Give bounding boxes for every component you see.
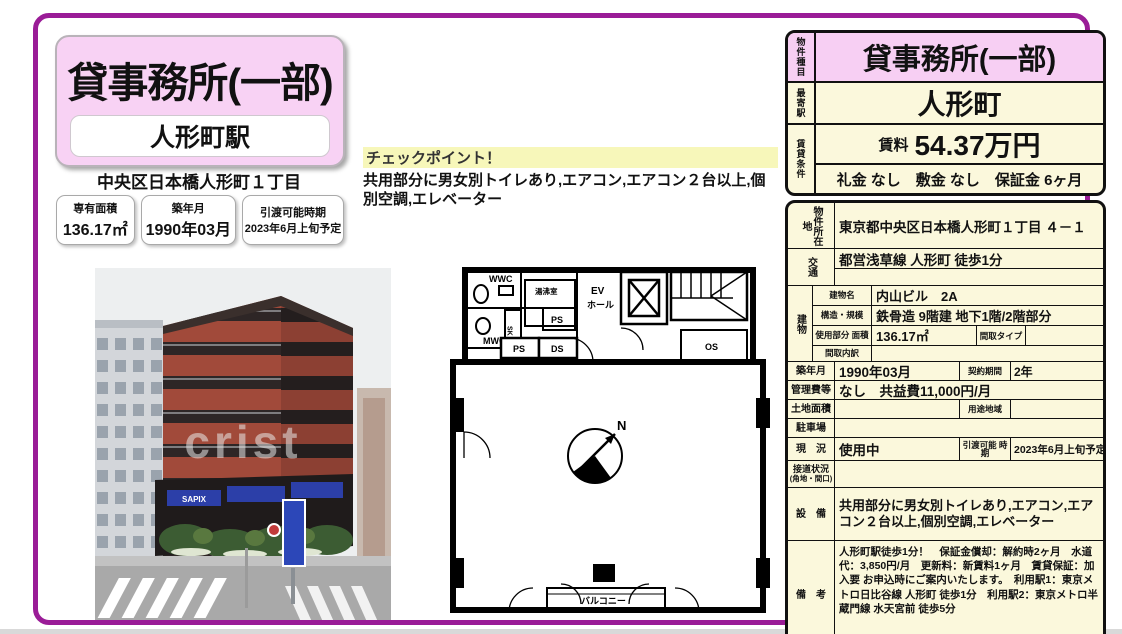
type-label: 物件種目 bbox=[788, 33, 816, 81]
os-label: OS bbox=[705, 342, 718, 352]
row-fees: 管理費等 なし 共益費11,000円/月 bbox=[788, 381, 1103, 400]
checkpoint-body: 共用部分に男女別トイレあり,エアコン,エアコン２台以上,個別空調,エレベーター bbox=[363, 172, 777, 210]
row-location: 物件所在地 東京都中央区日本橋人形町１丁目 ４－１ bbox=[788, 203, 1103, 249]
badge-handover-label: 引渡可能時期 bbox=[260, 204, 326, 220]
nearest-station-value: 人形町 bbox=[816, 83, 1103, 123]
rent-value: 54.37万円 bbox=[914, 124, 1040, 164]
road-label: 接道状況 (角地・間口) bbox=[788, 461, 835, 487]
row-land: 土地面積 用途地域 bbox=[788, 400, 1103, 419]
station-name-box: 人形町駅 bbox=[70, 115, 330, 157]
row-building: 建物 建物名 内山ビル 2A 構造・規模 鉄骨造 9階建 地下1階/2階部分 使… bbox=[788, 286, 1103, 362]
ps-small-label: PS bbox=[551, 315, 563, 325]
built-value: 1990年03月 bbox=[835, 362, 959, 380]
area-value: 136.17㎡ bbox=[872, 326, 977, 345]
row-built: 築年月 1990年03月 契約期間 2年 bbox=[788, 362, 1103, 381]
property-flyer: 貸事務所(一部) 人形町駅 中央区日本橋人形町１丁目 専有面積 136.17㎡ … bbox=[0, 0, 1122, 634]
road-label-sub: (角地・間口) bbox=[790, 475, 833, 483]
badge-area: 専有面積 136.17㎡ bbox=[56, 195, 135, 245]
badge-built: 築年月 1990年03月 bbox=[141, 195, 236, 245]
row-parking: 駐車場 bbox=[788, 419, 1103, 438]
contract-label: 契約期間 bbox=[959, 362, 1011, 380]
station-name: 人形町駅 bbox=[150, 118, 250, 154]
row-access: 交通 都営浅草線 人形町 徒歩1分 bbox=[788, 249, 1103, 286]
summary-row-terms: 賃貸条件 賃料 54.37万円 礼金 なし 敷金 なし 保証金 6ヶ月 bbox=[788, 125, 1103, 193]
compass-north-label: N bbox=[617, 418, 626, 433]
badge-built-value: 1990年03月 bbox=[146, 216, 231, 240]
access-label: 交通 bbox=[788, 249, 835, 285]
ps-label: PS bbox=[513, 344, 525, 354]
photo-watermark: crist bbox=[184, 416, 301, 468]
parking-value bbox=[835, 419, 1103, 437]
yuwakashi-label: 湯沸室 bbox=[535, 286, 558, 296]
structure-value: 鉄骨造 9階建 地下1階/2階部分 bbox=[872, 306, 1103, 325]
ds-label: DS bbox=[551, 344, 564, 354]
rent-line: 賃料 54.37万円 bbox=[816, 125, 1103, 165]
remarks-value: 人形町駅徒歩1分！ 保証金償却：解約時2ヶ月 水道代：3,850円/月 更新料：… bbox=[839, 545, 1099, 616]
equipment-label: 設 備 bbox=[788, 488, 835, 540]
ev-hall-line1: EV bbox=[591, 286, 605, 297]
building-name-value: 内山ビル 2A bbox=[872, 286, 1103, 305]
ev-hall-line2: ホール bbox=[587, 300, 614, 310]
building-name-label: 建物名 bbox=[813, 286, 872, 305]
layout-detail-label: 間取内訳 bbox=[813, 346, 872, 361]
badge-area-label: 専有面積 bbox=[73, 200, 117, 216]
property-type-title: 貸事務所(一部) bbox=[67, 49, 332, 109]
floor-plan: WWC MWC 湯沸室 SK PS EV ホール bbox=[443, 258, 773, 620]
row-equipment: 設 備 共用部分に男女別トイレあり,エアコン,エアコン２台以上,個別空調,エレベ… bbox=[788, 488, 1103, 541]
land-value bbox=[835, 400, 959, 418]
property-title-box: 貸事務所(一部) 人形町駅 bbox=[55, 35, 345, 167]
parking-label: 駐車場 bbox=[788, 419, 835, 437]
handover-value: 2023年6月上旬予定 bbox=[1011, 438, 1103, 460]
badge-built-label: 築年月 bbox=[172, 200, 205, 216]
status-label: 現 況 bbox=[788, 438, 835, 460]
layout-type-label: 間取タイプ bbox=[977, 326, 1026, 345]
road-value bbox=[835, 461, 1103, 487]
badge-area-value: 136.17㎡ bbox=[63, 216, 128, 240]
row-road: 接道状況 (角地・間口) bbox=[788, 461, 1103, 488]
rent-label: 賃料 bbox=[878, 134, 908, 155]
summary-table: 物件種目 貸事務所(一部) 最寄駅 人形町 賃貸条件 賃料 54.37万円 礼金… bbox=[785, 30, 1106, 196]
wwc-label: WWC bbox=[489, 274, 513, 284]
badge-handover: 引渡可能時期 2023年6月上旬予定 bbox=[242, 195, 344, 245]
building-label: 建物 bbox=[788, 286, 813, 361]
area-row: 使用部分 面積 136.17㎡ 間取タイプ bbox=[813, 326, 1103, 346]
floor-plan-graphic: WWC MWC 湯沸室 SK PS EV ホール bbox=[443, 258, 773, 620]
area-label: 使用部分 面積 bbox=[813, 326, 872, 345]
details-table: 物件所在地 東京都中央区日本橋人形町１丁目 ４－１ 交通 都営浅草線 人形町 徒… bbox=[785, 200, 1106, 634]
contract-value: 2年 bbox=[1011, 362, 1103, 380]
zone-label: 用途地域 bbox=[959, 400, 1011, 418]
row-remarks: 備 考 人形町駅徒歩1分！ 保証金償却：解約時2ヶ月 水道代：3,850円/月 … bbox=[788, 541, 1103, 634]
remarks-label: 備 考 bbox=[788, 541, 835, 634]
equipment-value: 共用部分に男女別トイレあり,エアコン,エアコン２台以上,個別空調,エレベーター bbox=[839, 498, 1099, 531]
summary-badges: 専有面積 136.17㎡ 築年月 1990年03月 引渡可能時期 2023年6月… bbox=[56, 195, 344, 245]
layout-detail-row: 間取内訳 bbox=[813, 346, 1103, 361]
row-status: 現 況 使用中 引渡可能 時期 2023年6月上旬予定 bbox=[788, 438, 1103, 461]
structure-label: 構造・規模 bbox=[813, 306, 872, 325]
type-value: 貸事務所(一部) bbox=[816, 33, 1103, 81]
layout-type-value bbox=[1026, 326, 1103, 345]
summary-row-station: 最寄駅 人形町 bbox=[788, 83, 1103, 125]
storefront-sign-text: SAPIX bbox=[182, 495, 207, 504]
sk-label: SK bbox=[506, 326, 513, 336]
building-photo: SAPIX bbox=[95, 268, 391, 620]
location-value: 東京都中央区日本橋人形町１丁目 ４－１ bbox=[835, 203, 1103, 248]
access-value: 都営浅草線 人形町 徒歩1分 bbox=[835, 249, 1103, 269]
fees-value: なし 共益費11,000円/月 bbox=[835, 381, 1103, 399]
status-value: 使用中 bbox=[835, 438, 959, 460]
structure-row: 構造・規模 鉄骨造 9階建 地下1階/2階部分 bbox=[813, 306, 1103, 326]
building-name-row: 建物名 内山ビル 2A bbox=[813, 286, 1103, 306]
built-label: 築年月 bbox=[788, 362, 835, 380]
layout-detail-value bbox=[872, 346, 1103, 361]
building-photo-graphic: SAPIX bbox=[95, 268, 391, 620]
land-label: 土地面積 bbox=[788, 400, 835, 418]
terms-line: 礼金 なし 敷金 なし 保証金 6ヶ月 bbox=[816, 165, 1103, 193]
location-label: 物件所在地 bbox=[788, 203, 835, 248]
badge-handover-value: 2023年6月上旬予定 bbox=[245, 220, 342, 236]
checkpoint-title: チェックポイント！ bbox=[363, 147, 778, 168]
handover-label: 引渡可能 時期 bbox=[959, 438, 1011, 460]
zone-value bbox=[1011, 400, 1103, 418]
nearest-station-label: 最寄駅 bbox=[788, 83, 816, 123]
access-value-2 bbox=[835, 269, 1103, 285]
compass bbox=[568, 429, 622, 483]
terms-label: 賃貸条件 bbox=[788, 125, 816, 193]
balcony-label: バルコニー bbox=[581, 596, 626, 606]
summary-row-type: 物件種目 貸事務所(一部) bbox=[788, 33, 1103, 83]
property-address: 中央区日本橋人形町１丁目 bbox=[40, 168, 358, 193]
fees-label: 管理費等 bbox=[788, 381, 835, 399]
